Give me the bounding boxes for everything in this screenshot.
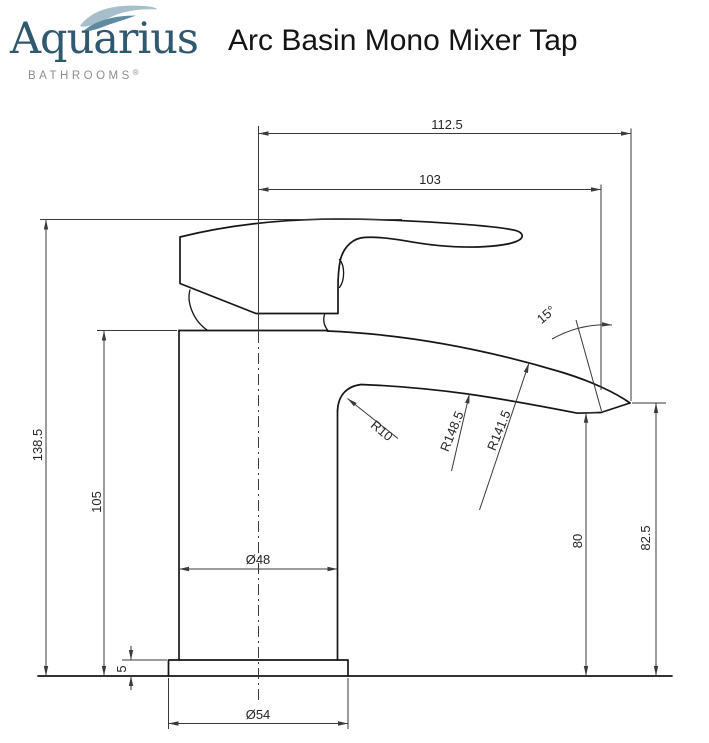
label-height-spout-tip: 82.5 — [638, 525, 653, 550]
label-width-to-outlet: 103 — [419, 172, 441, 187]
dimension-labels: 112.5 103 138.5 105 5 80 82.5 Ø48 Ø54 15… — [30, 117, 653, 722]
product-drawing-page: Aquarius BATHROOMS® Arc Basin Mono Mixer… — [0, 0, 709, 743]
dimension-lines — [46, 134, 656, 724]
label-height-outlet: 80 — [570, 534, 585, 548]
label-top-radius: R141.5 — [484, 408, 514, 452]
label-height-overall: 138.5 — [30, 429, 45, 462]
label-fillet-radius: R10 — [368, 417, 396, 444]
angle-arc — [552, 325, 612, 339]
label-height-body: 105 — [89, 491, 104, 513]
spout-underside-curve — [338, 385, 631, 414]
label-base-diameter: Ø54 — [246, 707, 271, 722]
label-base-thickness: 5 — [114, 665, 129, 672]
label-width-overall: 112.5 — [431, 117, 463, 132]
technical-drawing: 112.5 103 138.5 105 5 80 82.5 Ø48 Ø54 15… — [0, 0, 709, 743]
label-body-diameter: Ø48 — [246, 552, 271, 567]
lever-handle-outline — [180, 219, 522, 313]
label-spout-angle: 15° — [534, 302, 559, 326]
angle-reference-line — [576, 320, 602, 411]
spout-top-curve — [327, 331, 630, 403]
dome-right-arc — [324, 315, 329, 332]
dome-left-arc — [189, 290, 207, 330]
label-under-radius: R148.5 — [437, 409, 467, 453]
tap-outline — [38, 219, 672, 676]
